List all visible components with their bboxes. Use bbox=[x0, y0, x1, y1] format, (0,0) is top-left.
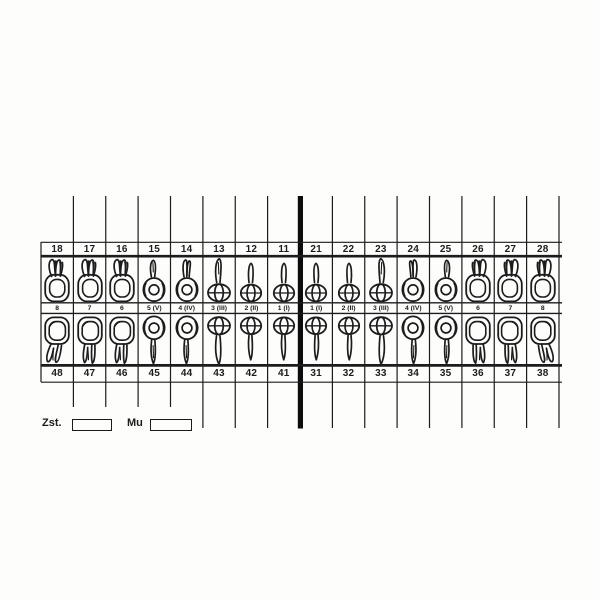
lower-tooth-cell bbox=[462, 314, 494, 366]
deciduous-tooth-label: 8 bbox=[527, 303, 559, 314]
tooth-number-upper: 27 bbox=[494, 242, 526, 256]
tooth-number-lower: 42 bbox=[235, 365, 267, 382]
tooth-number-upper: 15 bbox=[138, 242, 170, 256]
tooth-column: 21 1 (I) 31 bbox=[300, 242, 332, 382]
deciduous-tooth-label: 2 (II) bbox=[235, 303, 267, 314]
lower-tooth-icon bbox=[269, 315, 299, 365]
upper-tooth-icon bbox=[236, 256, 266, 302]
mu-input-box[interactable] bbox=[150, 419, 192, 432]
upper-tooth-icon bbox=[398, 256, 428, 302]
tooth-column: 17 7 47 bbox=[73, 242, 105, 382]
deciduous-tooth-label: 3 (III) bbox=[365, 303, 397, 314]
upper-tooth-icon bbox=[431, 256, 461, 302]
tooth-column: 15 5 (V) 45 bbox=[138, 242, 170, 382]
deciduous-tooth-label: 2 (II) bbox=[332, 303, 364, 314]
deciduous-tooth-label: 5 (V) bbox=[430, 303, 462, 314]
lower-tooth-icon bbox=[204, 315, 234, 365]
upper-tooth-cell bbox=[41, 256, 73, 303]
tooth-number-lower: 41 bbox=[268, 365, 300, 382]
upper-tooth-icon bbox=[301, 256, 331, 302]
lower-tooth-cell bbox=[300, 314, 332, 366]
upper-tooth-icon bbox=[42, 256, 72, 302]
tooth-number-lower: 33 bbox=[365, 365, 397, 382]
upper-tooth-cell bbox=[73, 256, 105, 303]
lower-tooth-icon bbox=[528, 315, 558, 365]
lower-tooth-cell bbox=[494, 314, 526, 366]
lower-tooth-cell bbox=[138, 314, 170, 366]
tooth-number-lower: 32 bbox=[332, 365, 364, 382]
tooth-column: 13 3 (III) 43 bbox=[203, 242, 235, 382]
deciduous-tooth-label: 1 (I) bbox=[300, 303, 332, 314]
lower-tooth-icon bbox=[301, 315, 331, 365]
deciduous-tooth-label: 1 (I) bbox=[268, 303, 300, 314]
upper-tooth-cell bbox=[397, 256, 429, 303]
lower-tooth-icon bbox=[42, 315, 72, 365]
upper-tooth-cell bbox=[106, 256, 138, 303]
tooth-column: 26 6 36 bbox=[462, 242, 494, 382]
lower-tooth-icon bbox=[366, 315, 396, 365]
deciduous-tooth-label: 5 (V) bbox=[138, 303, 170, 314]
tooth-column: 23 3 (III) 33 bbox=[365, 242, 397, 382]
tooth-number-lower: 45 bbox=[138, 365, 170, 382]
tooth-number-lower: 46 bbox=[106, 365, 138, 382]
tooth-number-upper: 16 bbox=[106, 242, 138, 256]
tooth-number-upper: 28 bbox=[527, 242, 559, 256]
lower-tooth-icon bbox=[236, 315, 266, 365]
tooth-column: 27 7 37 bbox=[494, 242, 526, 382]
lower-tooth-icon bbox=[495, 315, 525, 365]
tooth-number-upper: 11 bbox=[268, 242, 300, 256]
tooth-number-upper: 18 bbox=[41, 242, 73, 256]
upper-tooth-cell bbox=[462, 256, 494, 303]
upper-tooth-icon bbox=[172, 256, 202, 302]
lower-tooth-icon bbox=[75, 315, 105, 365]
deciduous-tooth-label: 6 bbox=[106, 303, 138, 314]
lower-tooth-cell bbox=[527, 314, 559, 366]
upper-tooth-icon bbox=[495, 256, 525, 302]
upper-tooth-icon bbox=[366, 256, 396, 302]
deciduous-tooth-label: 3 (III) bbox=[203, 303, 235, 314]
upper-tooth-cell bbox=[332, 256, 364, 303]
lower-tooth-cell bbox=[203, 314, 235, 366]
lower-tooth-cell bbox=[235, 314, 267, 366]
tooth-number-upper: 26 bbox=[462, 242, 494, 256]
upper-tooth-cell bbox=[430, 256, 462, 303]
upper-tooth-cell bbox=[365, 256, 397, 303]
tooth-number-lower: 48 bbox=[41, 365, 73, 382]
tooth-number-upper: 24 bbox=[397, 242, 429, 256]
tooth-number-lower: 44 bbox=[171, 365, 203, 382]
lower-tooth-cell bbox=[430, 314, 462, 366]
tooth-column: 28 8 38 bbox=[527, 242, 559, 382]
tooth-number-upper: 17 bbox=[73, 242, 105, 256]
dental-chart-page: 18 8 48 17 7 47 16 bbox=[0, 0, 600, 600]
lower-tooth-cell bbox=[41, 314, 73, 366]
tooth-number-lower: 38 bbox=[527, 365, 559, 382]
lower-tooth-icon bbox=[172, 315, 202, 365]
upper-tooth-cell bbox=[527, 256, 559, 303]
deciduous-tooth-label: 7 bbox=[494, 303, 526, 314]
lower-tooth-icon bbox=[334, 315, 364, 365]
tooth-number-upper: 13 bbox=[203, 242, 235, 256]
tooth-number-upper: 21 bbox=[300, 242, 332, 256]
upper-tooth-cell bbox=[203, 256, 235, 303]
tooth-column: 16 6 46 bbox=[106, 242, 138, 382]
tooth-number-lower: 43 bbox=[203, 365, 235, 382]
tooth-number-lower: 35 bbox=[430, 365, 462, 382]
upper-tooth-cell bbox=[300, 256, 332, 303]
tooth-number-lower: 47 bbox=[73, 365, 105, 382]
upper-tooth-icon bbox=[139, 256, 169, 302]
upper-tooth-cell bbox=[138, 256, 170, 303]
lower-tooth-icon bbox=[107, 315, 137, 365]
lower-tooth-icon bbox=[431, 315, 461, 365]
lower-tooth-icon bbox=[139, 315, 169, 365]
lower-tooth-cell bbox=[332, 314, 364, 366]
lower-tooth-icon bbox=[463, 315, 493, 365]
lower-tooth-cell bbox=[106, 314, 138, 366]
tooth-number-lower: 34 bbox=[397, 365, 429, 382]
deciduous-tooth-label: 8 bbox=[41, 303, 73, 314]
tooth-number-lower: 37 bbox=[494, 365, 526, 382]
upper-tooth-cell bbox=[235, 256, 267, 303]
tooth-column: 24 4 (IV) 34 bbox=[397, 242, 429, 382]
deciduous-tooth-label: 6 bbox=[462, 303, 494, 314]
tooth-number-lower: 36 bbox=[462, 365, 494, 382]
zst-input-box[interactable] bbox=[72, 419, 112, 432]
upper-tooth-cell bbox=[494, 256, 526, 303]
lower-tooth-cell bbox=[268, 314, 300, 366]
deciduous-tooth-label: 4 (IV) bbox=[171, 303, 203, 314]
upper-tooth-icon bbox=[463, 256, 493, 302]
deciduous-tooth-label: 7 bbox=[73, 303, 105, 314]
upper-tooth-cell bbox=[171, 256, 203, 303]
upper-tooth-icon bbox=[528, 256, 558, 302]
tooth-column: 22 2 (II) 32 bbox=[332, 242, 364, 382]
lower-tooth-cell bbox=[171, 314, 203, 366]
tooth-column: 18 8 48 bbox=[41, 242, 73, 382]
tooth-number-upper: 12 bbox=[235, 242, 267, 256]
tooth-number-upper: 23 bbox=[365, 242, 397, 256]
tooth-number-upper: 22 bbox=[332, 242, 364, 256]
columns: 18 8 48 17 7 47 16 bbox=[41, 242, 559, 382]
lower-tooth-cell bbox=[397, 314, 429, 366]
lower-tooth-cell bbox=[365, 314, 397, 366]
upper-tooth-icon bbox=[269, 256, 299, 302]
upper-tooth-icon bbox=[75, 256, 105, 302]
tooth-column: 11 1 (I) 41 bbox=[268, 242, 300, 382]
zst-label: Zst. bbox=[42, 417, 62, 429]
tooth-number-lower: 31 bbox=[300, 365, 332, 382]
lower-tooth-icon bbox=[398, 315, 428, 365]
upper-tooth-icon bbox=[107, 256, 137, 302]
mu-label: Mu bbox=[127, 417, 143, 429]
upper-tooth-cell bbox=[268, 256, 300, 303]
lower-tooth-cell bbox=[73, 314, 105, 366]
tooth-column: 12 2 (II) 42 bbox=[235, 242, 267, 382]
upper-tooth-icon bbox=[204, 256, 234, 302]
tooth-number-upper: 25 bbox=[430, 242, 462, 256]
deciduous-tooth-label: 4 (IV) bbox=[397, 303, 429, 314]
tooth-column: 25 5 (V) 35 bbox=[430, 242, 462, 382]
upper-tooth-icon bbox=[334, 256, 364, 302]
tooth-number-upper: 14 bbox=[171, 242, 203, 256]
tooth-column: 14 4 (IV) 44 bbox=[171, 242, 203, 382]
